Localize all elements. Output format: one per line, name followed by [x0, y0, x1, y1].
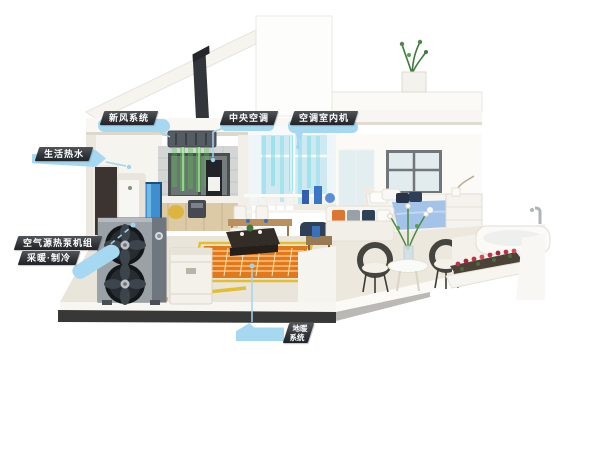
- callout-ribbon: 空气源热泵机组: [14, 236, 103, 250]
- callout-ribbon: 空调室内机: [290, 111, 359, 125]
- callout-ribbon: 生活热水: [35, 147, 94, 161]
- callout-text: 中央空调: [229, 111, 269, 125]
- callout-text: 空调室内机: [299, 111, 349, 125]
- callout-text: 系统: [290, 333, 305, 342]
- callout-ribbon: 采暖·制冷: [18, 251, 81, 265]
- callout-text: 采暖·制冷: [27, 251, 71, 265]
- step-platform: [298, 246, 336, 302]
- callout-ribbon: 中央空调: [220, 111, 279, 125]
- callout-ac-indoor-unit: 空调室内机: [288, 110, 364, 146]
- callout-bubble: [236, 323, 284, 341]
- callout-central-ac: 中央空调: [218, 110, 280, 136]
- callout-fresh-air: 新风系统: [98, 110, 178, 136]
- callout-heat-pump: 空气源热泵机组 采暖·制冷: [14, 236, 124, 278]
- callout-text: 空气源热泵机组: [23, 236, 93, 250]
- coffee-machine-icon: [188, 200, 206, 218]
- callout-text: 新风系统: [109, 111, 149, 125]
- callout-text: 地暖: [292, 324, 307, 333]
- roof: [86, 16, 482, 120]
- bag-icon: [168, 205, 184, 219]
- callout-hot-water: 生活热水: [32, 145, 118, 173]
- callout-floor-heating: 地暖 系统: [236, 320, 328, 344]
- cream-sofa: [326, 206, 394, 241]
- callout-ribbon: 地暖 系统: [283, 323, 314, 343]
- faucet-icon: [535, 208, 540, 224]
- callout-ribbon: 新风系统: [100, 111, 159, 125]
- roof-plant-icon: [400, 40, 428, 92]
- callout-pointer: [294, 131, 304, 142]
- house-cutaway-illustration: [0, 0, 600, 450]
- callout-text: 生活热水: [44, 147, 84, 161]
- hydronic-module: [170, 248, 212, 304]
- wall-unit: [206, 160, 222, 198]
